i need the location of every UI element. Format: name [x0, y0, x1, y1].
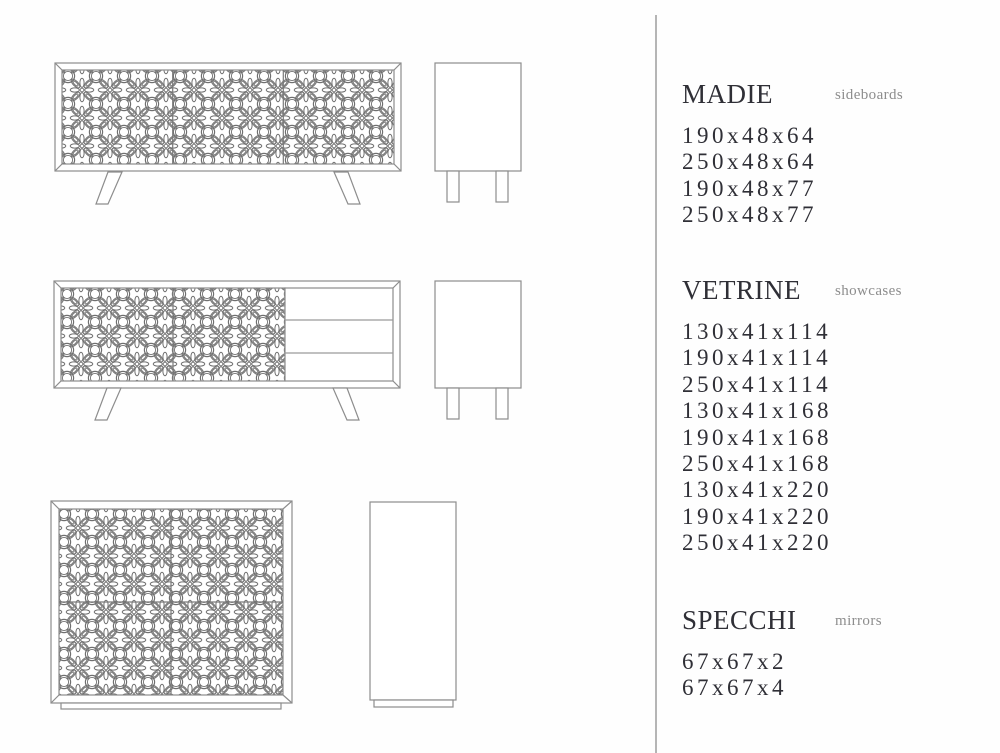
dimension-item: 250x41x220 [682, 530, 982, 556]
dimension-item: 250x48x64 [682, 149, 982, 175]
sideboard-drawers-front-drawing [53, 280, 401, 428]
dimension-item: 250x48x77 [682, 202, 982, 228]
section-specchi-header: SPECCHI mirrors [682, 604, 982, 636]
section-madie-dimensions: 190x48x64 250x48x64 190x48x77 250x48x77 [682, 123, 982, 229]
sideboard-side-drawing [434, 62, 524, 210]
section-madie-title: MADIE [682, 78, 773, 110]
dimension-item: 250x41x168 [682, 451, 982, 477]
showcase-side-drawing [368, 500, 460, 714]
section-vetrine-header: VETRINE showcases [682, 274, 982, 306]
section-vetrine: VETRINE showcases 130x41x114 190x41x114 … [682, 274, 982, 557]
sideboard-front-drawing [54, 62, 402, 210]
dimension-item: 130x41x114 [682, 319, 982, 345]
dimension-item: 130x41x220 [682, 477, 982, 503]
dimension-item: 190x41x168 [682, 425, 982, 451]
dimension-item: 67x67x4 [682, 675, 982, 701]
dimension-item: 190x48x64 [682, 123, 982, 149]
section-specchi-title: SPECCHI [682, 604, 797, 636]
dimension-item: 190x41x220 [682, 504, 982, 530]
catalog-page: MADIE sideboards 190x48x64 250x48x64 190… [0, 0, 1000, 753]
section-vetrine-title: VETRINE [682, 274, 801, 306]
dimension-item: 67x67x2 [682, 649, 982, 675]
section-specchi-subtitle: mirrors [835, 613, 882, 630]
vertical-divider [655, 15, 657, 753]
section-madie-subtitle: sideboards [835, 87, 903, 104]
sideboard-drawers-side-drawing [434, 280, 524, 428]
section-specchi-dimensions: 67x67x2 67x67x4 [682, 649, 982, 702]
specs-panel: MADIE sideboards 190x48x64 250x48x64 190… [682, 0, 982, 753]
showcase-front-drawing [50, 500, 296, 714]
section-madie-header: MADIE sideboards [682, 78, 982, 110]
section-vetrine-subtitle: showcases [835, 283, 902, 300]
dimension-item: 190x48x77 [682, 176, 982, 202]
dimension-item: 250x41x114 [682, 372, 982, 398]
section-madie: MADIE sideboards 190x48x64 250x48x64 190… [682, 78, 982, 229]
dimension-item: 190x41x114 [682, 345, 982, 371]
dimension-item: 130x41x168 [682, 398, 982, 424]
section-vetrine-dimensions: 130x41x114 190x41x114 250x41x114 130x41x… [682, 319, 982, 557]
section-specchi: SPECCHI mirrors 67x67x2 67x67x4 [682, 604, 982, 702]
